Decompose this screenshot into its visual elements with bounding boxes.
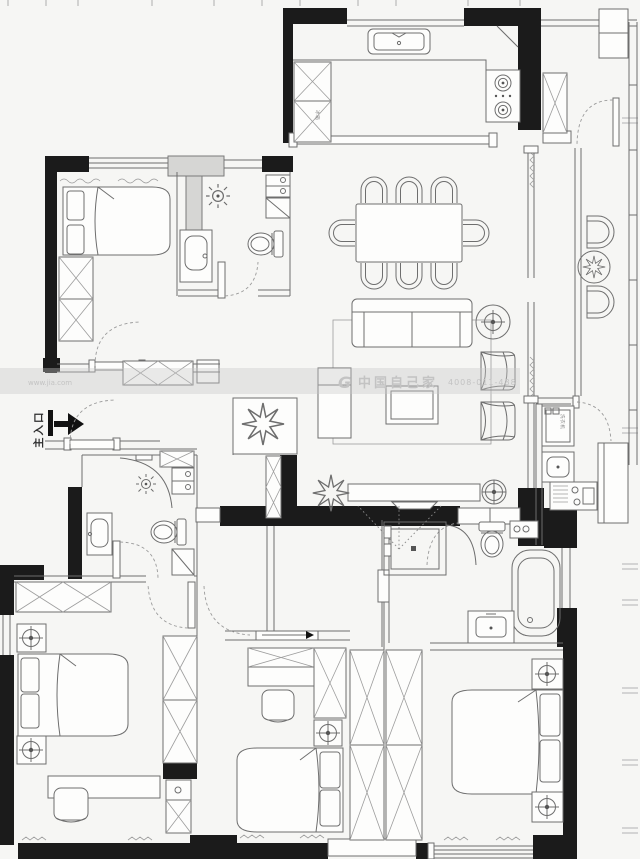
- toilet-icon: [151, 519, 186, 545]
- wardrobe: [16, 582, 111, 612]
- ceiling-deco: [482, 480, 506, 504]
- toilet-icon: [479, 522, 505, 557]
- armchair: [481, 402, 515, 440]
- storage-boxes: [266, 175, 290, 218]
- bed: [18, 654, 128, 736]
- shower-head-icon: [136, 474, 156, 494]
- dining-area: [329, 177, 489, 289]
- entrance-arrow-tail: [48, 410, 53, 436]
- stove-icon: [486, 70, 520, 122]
- bedroom-top-left: [59, 179, 170, 370]
- shower-door-arc: [446, 525, 476, 565]
- watermark-site: www.jia.com: [28, 379, 72, 387]
- bedroom-middle: [204, 586, 384, 840]
- balcony: [524, 146, 614, 403]
- utility-area: 洗衣机: [542, 402, 628, 523]
- wardrobe: [59, 257, 93, 341]
- utility-cabinet: [598, 443, 628, 523]
- bedroom-bottom-left: [16, 582, 197, 840]
- main-entrance-label: 主入口: [32, 411, 45, 449]
- desk-chair: [54, 788, 88, 822]
- bath-door-arc: [120, 542, 158, 578]
- sofa: [352, 299, 472, 347]
- kitchen-cabinets: 冰箱: [294, 62, 331, 142]
- dining-table: [356, 204, 462, 262]
- bed: [63, 187, 170, 255]
- washing-machine-label: 洗衣机: [559, 414, 566, 429]
- bath-door-arc: [225, 262, 258, 296]
- vanity-sink: [87, 513, 112, 555]
- bath-door-leaf: [113, 541, 120, 578]
- master-bedroom: [386, 650, 563, 840]
- toilet-icon: [248, 231, 283, 257]
- floor-plan-drawing: 冰箱: [0, 0, 640, 859]
- bedroom-door-arc: [148, 584, 188, 628]
- kitchen: 冰箱: [293, 26, 520, 142]
- floor-plan: 冰箱: [0, 0, 640, 859]
- washing-machine: 洗衣机: [542, 406, 574, 446]
- vanity-sink: [180, 230, 212, 282]
- desk-cabinet: [248, 648, 314, 686]
- pocket-door: [256, 631, 318, 640]
- hall-cabinet: [543, 9, 628, 146]
- bedroom-door-leaf: [188, 582, 195, 628]
- fridge-label: 冰箱: [314, 110, 321, 120]
- tall-wardrobe: [350, 650, 384, 840]
- bed: [452, 690, 563, 794]
- hall-door-arc: [204, 586, 250, 635]
- vanity-sink: [468, 611, 514, 643]
- utility-door-arc: [577, 402, 611, 441]
- bathtub: [512, 550, 560, 636]
- wardrobe: [314, 648, 346, 718]
- balcony-door-arc: [577, 100, 613, 146]
- bathroom-guest: [87, 455, 194, 578]
- tv-icon: [392, 502, 437, 509]
- balcony-chair: [587, 216, 614, 248]
- bedroom-door-arc: [95, 322, 139, 366]
- balcony-door-leaf: [613, 98, 619, 146]
- mop-basin: [550, 482, 597, 510]
- entrance-arrow-icon: [54, 413, 84, 435]
- utility-sink: [542, 452, 574, 482]
- floor-plant-icon: [313, 475, 349, 511]
- watermark-brand: 中国自己家: [358, 375, 438, 391]
- bed: [237, 748, 343, 832]
- entrance-door-leaf: [70, 440, 114, 449]
- watermark-phone: 4008-011-488: [448, 378, 517, 387]
- bath-door-leaf: [218, 262, 225, 298]
- balcony-table: [578, 251, 610, 283]
- curtain-mark: [530, 357, 534, 397]
- wardrobe-column: [163, 636, 197, 833]
- desk-chair: [262, 690, 294, 722]
- balcony-chair: [587, 286, 614, 318]
- watermark: www.jia.com G 中国自己家 4008-011-488: [0, 368, 520, 394]
- storage-boxes: [172, 468, 194, 494]
- tall-wardrobe: [386, 650, 422, 840]
- kitchen-sink: [368, 29, 430, 54]
- curtain-mark: [530, 152, 534, 188]
- watermark-logo-icon: G: [338, 373, 351, 392]
- shower-head-icon: [206, 184, 230, 208]
- side-table: [476, 305, 510, 339]
